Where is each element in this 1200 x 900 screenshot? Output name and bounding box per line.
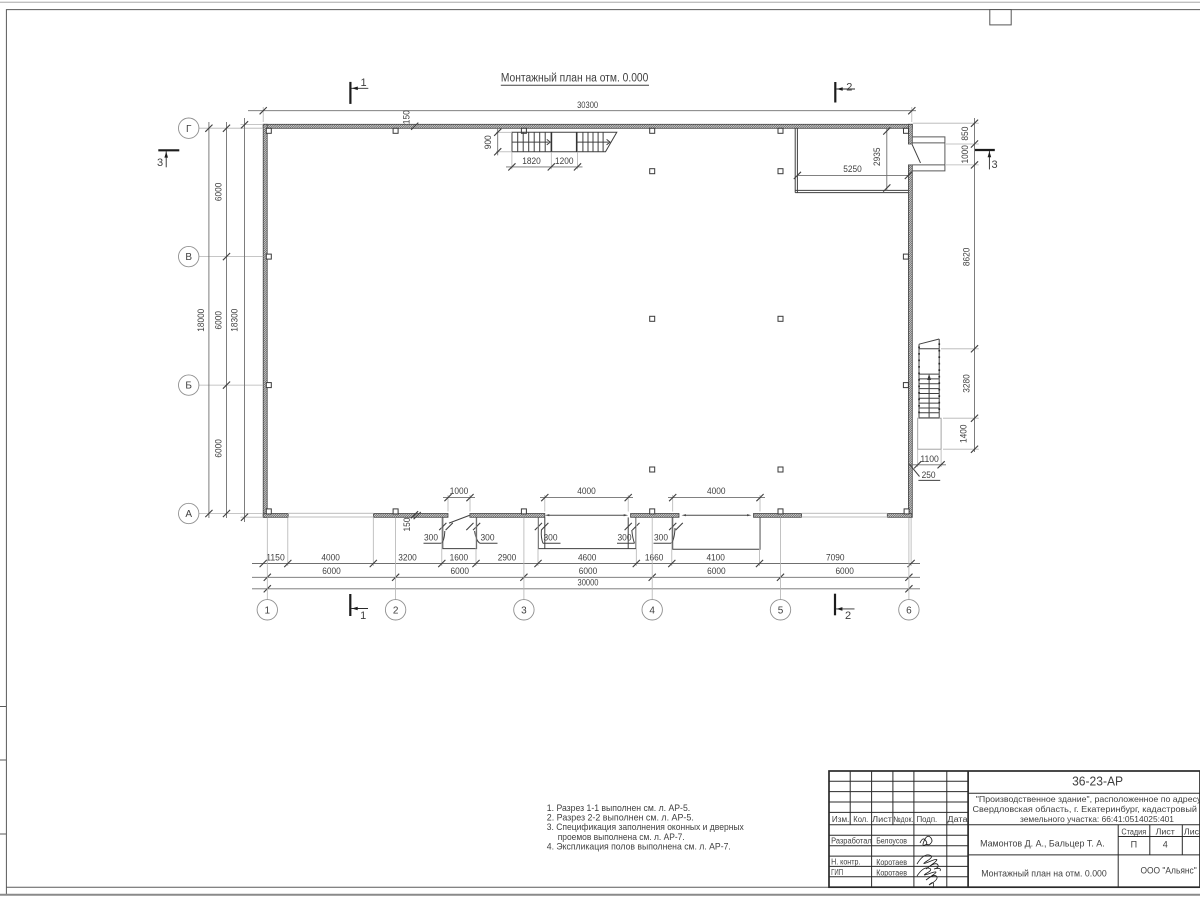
svg-text:5: 5	[778, 605, 784, 616]
svg-text:1660: 1660	[645, 552, 664, 562]
svg-text:150: 150	[402, 518, 412, 532]
svg-text:Белоусов: Белоусов	[876, 837, 907, 846]
svg-text:А: А	[185, 509, 192, 520]
svg-text:Лист: Лист	[1184, 827, 1200, 836]
svg-text:7090: 7090	[826, 552, 845, 562]
svg-text:18000: 18000	[196, 309, 206, 332]
svg-text:Коротаев: Коротаев	[876, 858, 907, 867]
svg-text:1: 1	[265, 605, 271, 616]
svg-text:2935: 2935	[872, 147, 882, 166]
svg-text:4000: 4000	[577, 486, 596, 496]
svg-text:900: 900	[483, 135, 493, 149]
svg-text:5250: 5250	[843, 164, 862, 174]
svg-text:П: П	[1131, 839, 1137, 849]
svg-text:4: 4	[1163, 839, 1168, 849]
svg-text:Дата: Дата	[947, 815, 968, 824]
svg-text:8620: 8620	[962, 248, 972, 267]
svg-text:1150: 1150	[266, 552, 285, 562]
svg-text:250: 250	[922, 470, 936, 480]
svg-text:1000: 1000	[960, 145, 970, 164]
svg-text:Стадия: Стадия	[1121, 827, 1146, 836]
svg-text:Монтажный план на отм. 0.000: Монтажный план на отм. 0.000	[501, 72, 649, 84]
svg-text:4100: 4100	[706, 552, 725, 562]
svg-text:2: 2	[393, 605, 399, 616]
svg-text:6000: 6000	[579, 566, 598, 576]
svg-text:Коротаев: Коротаев	[876, 868, 907, 877]
svg-text:Разработал: Разработал	[831, 837, 872, 846]
svg-text:30300: 30300	[577, 100, 598, 110]
svg-text:1000: 1000	[450, 486, 469, 496]
svg-text:3: 3	[992, 159, 998, 171]
svg-text:6000: 6000	[213, 183, 223, 202]
svg-text:4. Экспликация полов выполнена: 4. Экспликация полов выполнена см. л. АР…	[547, 842, 731, 852]
svg-text:2. Разрез 2-2 выполнен см. л.: 2. Разрез 2-2 выполнен см. л. АР-5.	[547, 813, 694, 823]
svg-text:1400: 1400	[959, 424, 969, 443]
svg-text:4000: 4000	[321, 552, 340, 562]
svg-text:Свердловская область, г. Екате: Свердловская область, г. Екатеринбург, к…	[973, 804, 1200, 814]
svg-text:Кол.: Кол.	[853, 815, 868, 824]
svg-text:4000: 4000	[707, 486, 726, 496]
svg-text:Мамонтов Д. А., Бальцер Т. А.: Мамонтов Д. А., Бальцер Т. А.	[980, 838, 1105, 848]
svg-text:2: 2	[845, 610, 851, 622]
svg-text:300: 300	[424, 533, 438, 543]
svg-text:Лист: Лист	[872, 815, 892, 824]
svg-text:36-23-АР: 36-23-АР	[1072, 775, 1123, 789]
svg-text:6: 6	[906, 605, 912, 616]
svg-text:18300: 18300	[230, 309, 240, 332]
svg-text:Н. контр.: Н. контр.	[831, 858, 860, 867]
svg-text:"Производственное здание", рас: "Производственное здание", расположенное…	[976, 794, 1200, 804]
svg-text:1. Разрез 1-1 выполнен см. л.: 1. Разрез 1-1 выполнен см. л. АР-5.	[547, 803, 690, 813]
svg-text:6000: 6000	[451, 566, 470, 576]
svg-text:3: 3	[157, 157, 163, 169]
svg-text:Подп.: Подп.	[917, 815, 938, 824]
svg-text:1100: 1100	[920, 454, 939, 464]
svg-text:проемов выполнена см. л. АР-7.: проемов выполнена см. л. АР-7.	[558, 832, 685, 842]
svg-text:3200: 3200	[398, 552, 417, 562]
svg-text:Лист: Лист	[1156, 827, 1175, 836]
svg-text:3280: 3280	[961, 374, 971, 393]
svg-text:ООО "Альянс": ООО "Альянс"	[1140, 866, 1196, 876]
svg-text:Изм.: Изм.	[832, 815, 849, 824]
svg-text:6000: 6000	[213, 439, 223, 458]
svg-text:6000: 6000	[707, 566, 726, 576]
svg-text:1200: 1200	[555, 156, 574, 166]
svg-text:300: 300	[544, 533, 558, 543]
svg-text:1: 1	[360, 77, 366, 89]
svg-text:3: 3	[521, 605, 527, 616]
svg-text:300: 300	[654, 533, 668, 543]
svg-text:1820: 1820	[522, 156, 541, 166]
svg-text:Б: Б	[185, 381, 192, 392]
svg-text:6000: 6000	[835, 566, 854, 576]
svg-text:земельного участка: 66:41:0514: земельного участка: 66:41:0514025:401	[1020, 814, 1174, 824]
svg-text:В: В	[185, 252, 192, 263]
svg-text:Монтажный план на отм. 0.000: Монтажный план на отм. 0.000	[981, 868, 1107, 878]
svg-text:ГИП: ГИП	[831, 868, 843, 877]
svg-text:150: 150	[402, 110, 412, 124]
svg-text:6000: 6000	[213, 311, 223, 330]
svg-text:300: 300	[618, 533, 632, 543]
svg-text:4: 4	[649, 605, 655, 616]
svg-text:Г: Г	[186, 124, 192, 135]
svg-text:6000: 6000	[322, 566, 341, 576]
svg-text:№док.: №док.	[893, 815, 913, 824]
svg-text:1600: 1600	[450, 552, 469, 562]
svg-text:1: 1	[360, 610, 366, 622]
svg-text:850: 850	[960, 127, 970, 141]
svg-text:2: 2	[846, 82, 852, 94]
svg-text:2900: 2900	[498, 552, 517, 562]
svg-text:30000: 30000	[578, 578, 599, 588]
svg-text:4600: 4600	[578, 552, 597, 562]
svg-text:300: 300	[481, 533, 495, 543]
svg-text:3. Спецификация заполнения око: 3. Спецификация заполнения оконных и две…	[547, 822, 744, 832]
